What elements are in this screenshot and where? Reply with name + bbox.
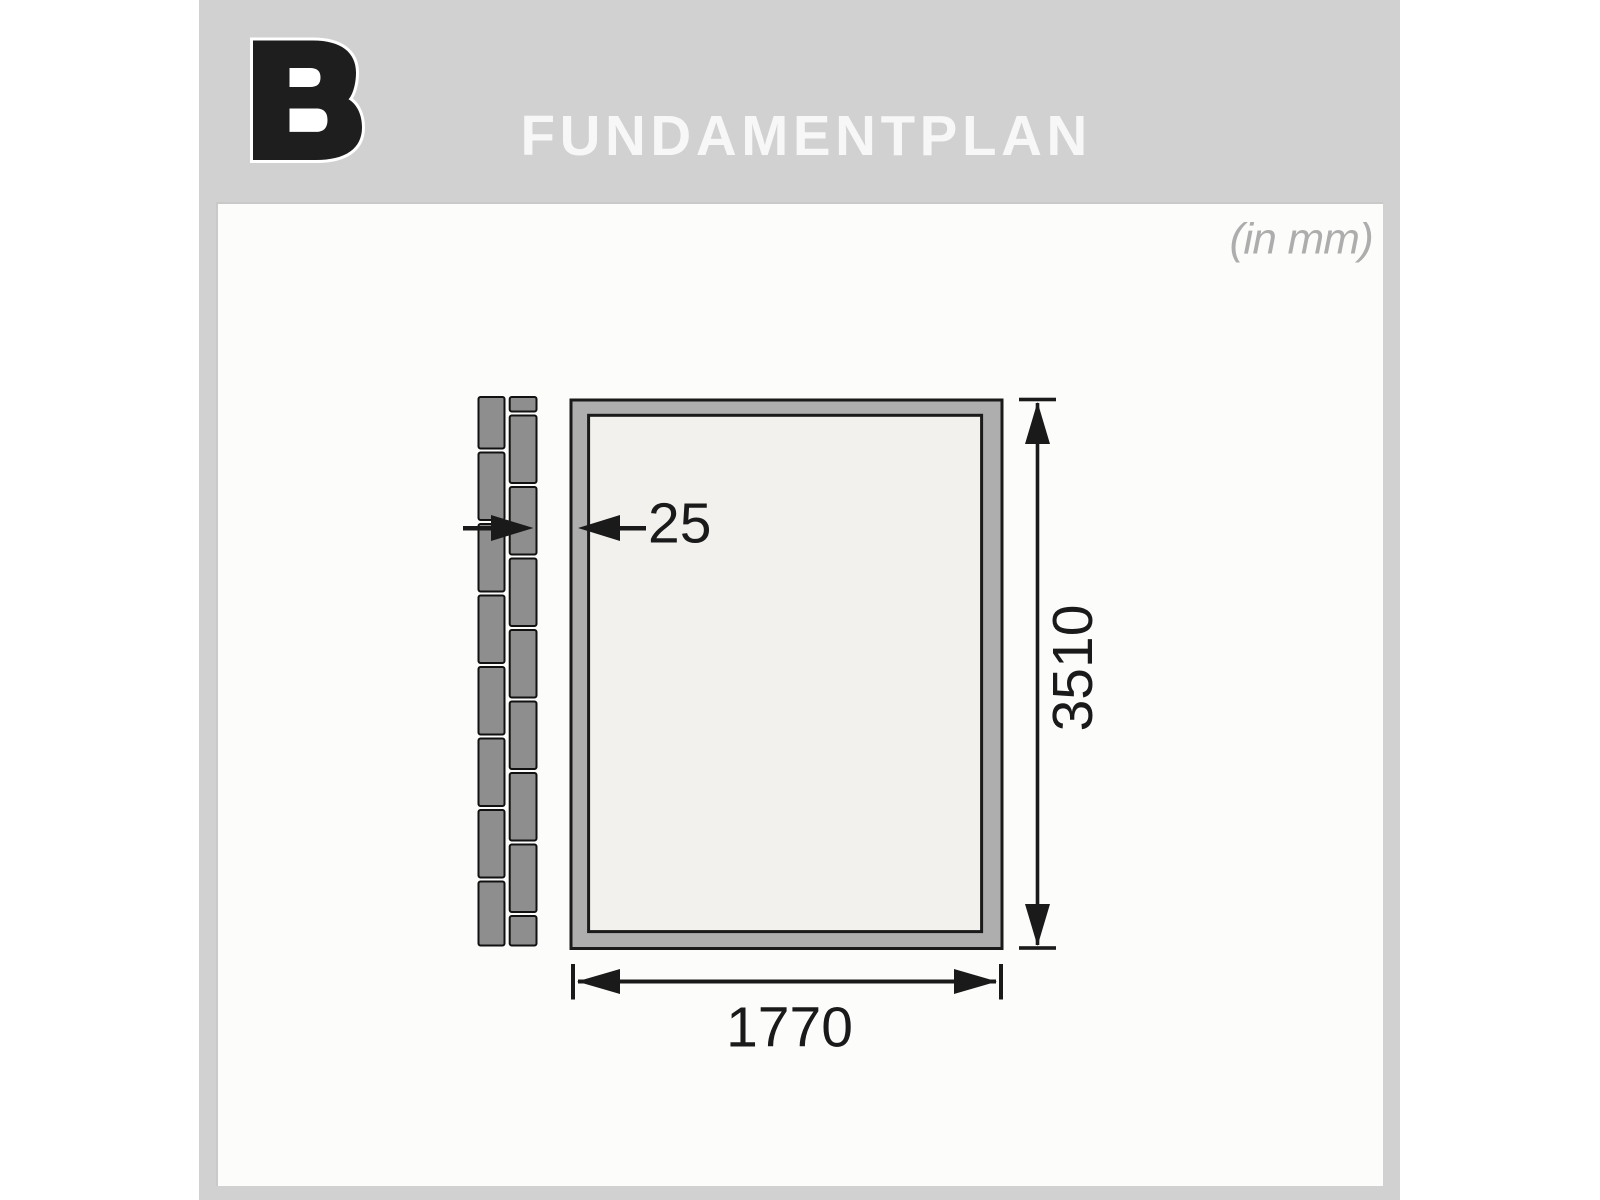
- svg-text:1770: 1770: [726, 995, 853, 1059]
- svg-text:(in mm): (in mm): [1230, 215, 1373, 264]
- svg-text:3510: 3510: [1041, 605, 1105, 732]
- svg-text:25: 25: [648, 492, 711, 556]
- svg-text:FUNDAMENTPLAN: FUNDAMENTPLAN: [521, 104, 1092, 167]
